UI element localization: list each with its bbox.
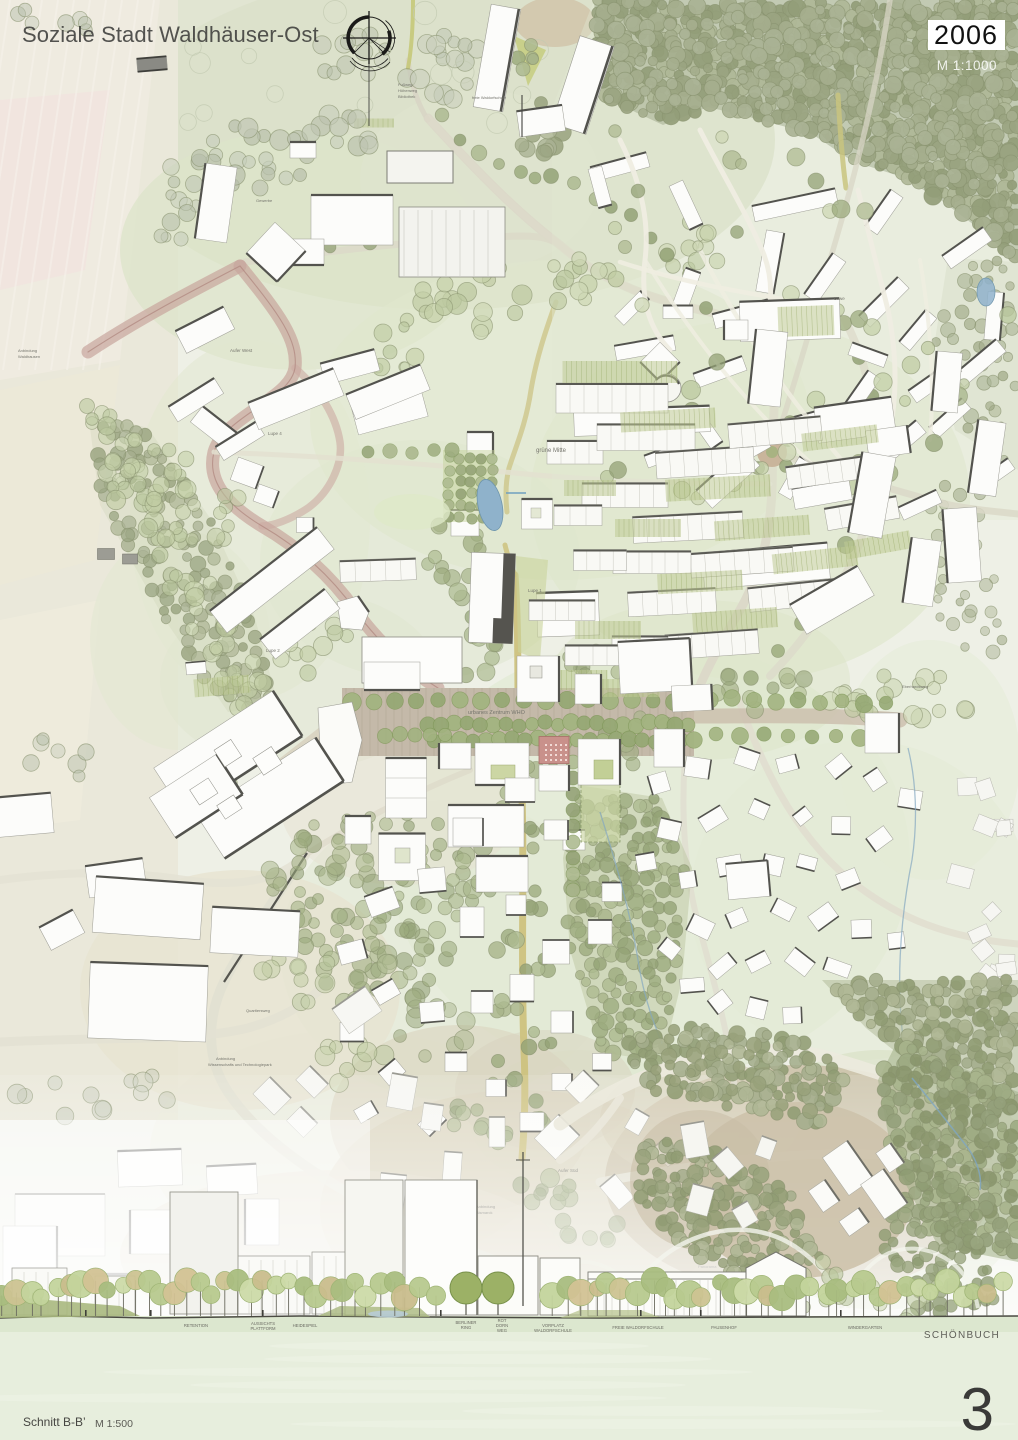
svg-text:Lupe 2: Lupe 2 bbox=[266, 648, 280, 653]
svg-text:Waldhausen: Waldhausen bbox=[18, 354, 40, 359]
svg-text:Lupe 4: Lupe 4 bbox=[268, 431, 282, 436]
svg-text:Fußweg: Fußweg bbox=[398, 82, 412, 87]
svg-text:Soziale Stadt Waldhäuser-Ost: Soziale Stadt Waldhäuser-Ost bbox=[22, 22, 319, 47]
svg-text:WALDORFSCHULE: WALDORFSCHULE bbox=[534, 1328, 572, 1333]
svg-text:WEG: WEG bbox=[497, 1328, 507, 1333]
svg-text:Wissenschafts und Technologiep: Wissenschafts und Technologiepark bbox=[208, 1062, 272, 1067]
svg-text:grüne Mitte: grüne Mitte bbox=[536, 448, 567, 454]
svg-text:RETENTION: RETENTION bbox=[184, 1323, 208, 1328]
svg-text:freie Waldorfschule: freie Waldorfschule bbox=[472, 95, 507, 100]
svg-text:HEIDESPIEL: HEIDESPIEL bbox=[293, 1323, 318, 1328]
svg-text:FREIE WALDORFSCHULE: FREIE WALDORFSCHULE bbox=[612, 1325, 663, 1330]
svg-text:Gewerbe: Gewerbe bbox=[256, 198, 273, 203]
svg-text:Lupe 1: Lupe 1 bbox=[528, 588, 542, 593]
svg-text:Löwe: Löwe bbox=[834, 296, 845, 301]
svg-text:Höhenweg: Höhenweg bbox=[398, 88, 417, 93]
svg-text:Schnitt B-B’: Schnitt B-B’ bbox=[23, 1415, 86, 1429]
svg-text:Aufer West: Aufer West bbox=[230, 348, 253, 353]
svg-text:urbanes Zentrum WHO: urbanes Zentrum WHO bbox=[468, 710, 526, 716]
svg-text:WINDERGARTEN: WINDERGARTEN bbox=[848, 1325, 882, 1330]
svg-text:2006: 2006 bbox=[934, 20, 998, 50]
svg-text:Anbindung: Anbindung bbox=[216, 1056, 235, 1061]
svg-text:RING: RING bbox=[461, 1325, 471, 1330]
svg-text:SCHÖNBUCH: SCHÖNBUCH bbox=[924, 1329, 1000, 1341]
svg-text:M 1:500: M 1:500 bbox=[95, 1418, 133, 1430]
svg-text:PLATTFORM: PLATTFORM bbox=[250, 1326, 276, 1331]
svg-text:PAUSENHOF: PAUSENHOF bbox=[711, 1325, 737, 1330]
svg-text:M 1:1000: M 1:1000 bbox=[937, 58, 997, 73]
svg-text:Bibliothek: Bibliothek bbox=[398, 94, 415, 99]
svg-text:Anbindung: Anbindung bbox=[18, 348, 37, 353]
svg-text:Quartiersweg: Quartiersweg bbox=[246, 1008, 270, 1013]
svg-text:Eberhardsweg: Eberhardsweg bbox=[902, 684, 928, 689]
svg-text:3: 3 bbox=[961, 1376, 994, 1440]
